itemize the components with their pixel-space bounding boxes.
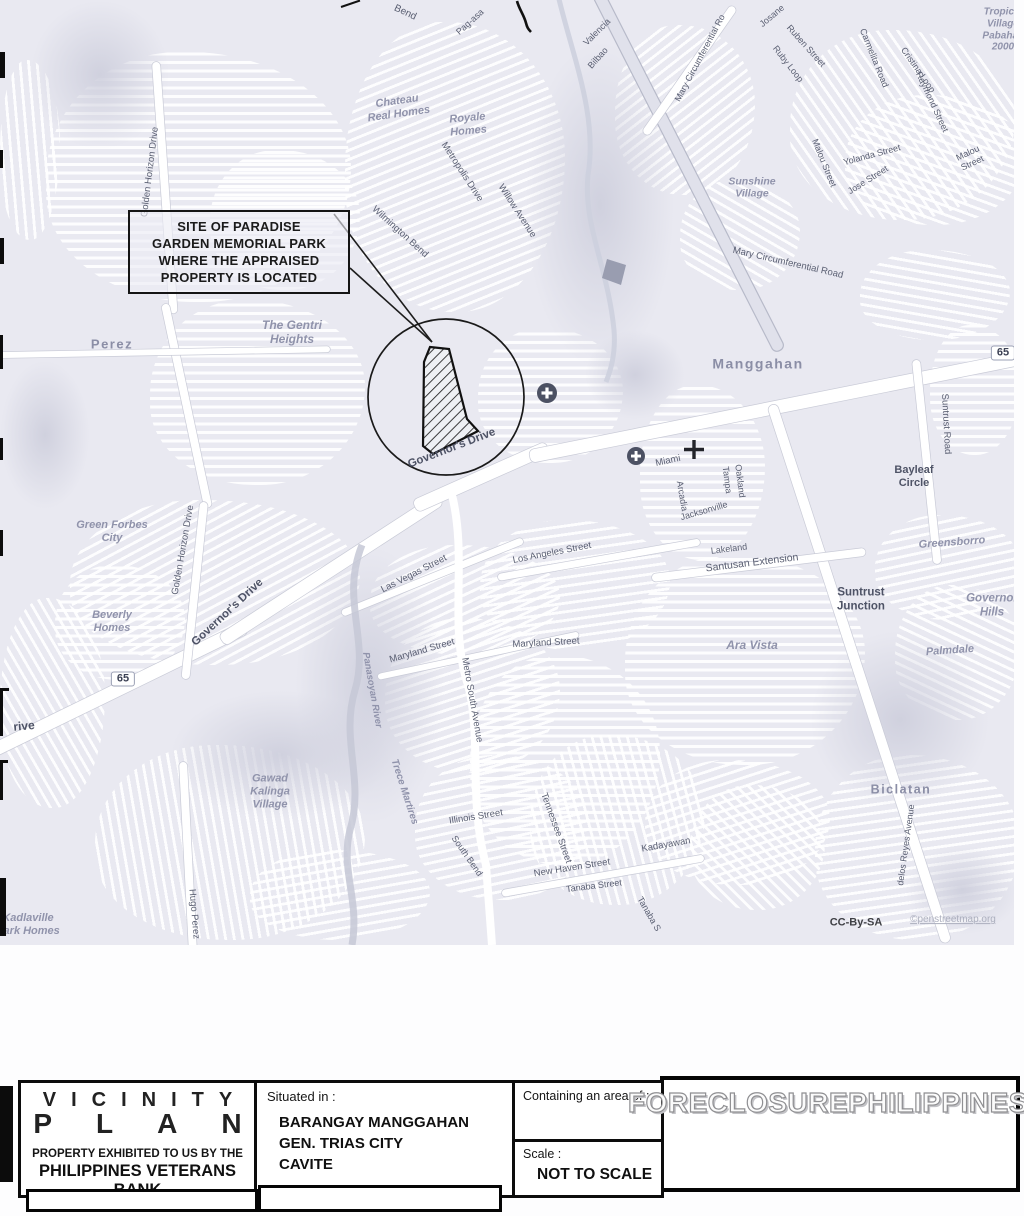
map-label: Gawad Kalinga Village [250,773,290,812]
map-label: Kadlaville Park Homes [0,912,60,938]
situated-in-value: BARANGAY MANGGAHAN GEN. TRIAS CITY CAVIT… [279,1112,512,1175]
scan-artifact [0,335,3,369]
map-label: Sunshine Village [728,176,775,201]
map-label: Tennessee Street [538,791,574,864]
map-label: Beverly Homes [92,609,132,635]
map-label: Ruby Loop [770,44,805,85]
map-label: Tampa [720,466,734,494]
scale-cell: Scale : NOT TO SCALE [515,1142,661,1195]
vicinity-map: BendPag-asaChateau Real HomesWilmington … [0,0,1014,945]
map-label: Bilbao [586,45,611,71]
scan-artifact [0,688,3,736]
scan-artifact [0,438,3,460]
route-shield: 65 [991,346,1014,361]
scan-artifact [0,530,3,556]
situated-in-label: Situated in : [267,1089,512,1104]
map-label: Yolanda Street [842,142,901,167]
scan-artifact [0,150,3,168]
map-label: Miami [654,453,681,469]
map-label: Josane [757,3,786,30]
map-label: Willow Avenue [496,182,539,240]
map-label: Palmdale [925,643,974,659]
map-label: Panasoyan River [360,651,384,728]
map-label: Perez [91,336,133,351]
map-label: Wilmington Bend [370,204,431,260]
map-label: Greensborro [918,534,985,552]
map-label: Cristina Loop [898,45,937,95]
scan-artifact [0,52,5,78]
map-label: Malou Street [946,139,995,177]
titleblock: VICINITY PLAN PROPERTY EXHIBITED TO US B… [18,1080,664,1198]
site-callout-box: SITE OF PARADISE GARDEN MEMORIAL PARK WH… [128,210,350,294]
map-label: Bend [392,3,418,24]
site-callout-text: SITE OF PARADISE GARDEN MEMORIAL PARK WH… [152,218,326,287]
scanned-vicinity-plan-page: BendPag-asaChateau Real HomesWilmington … [0,0,1024,1216]
map-label: Golden Horizon Drive [170,504,197,595]
exhibited-by-text: PROPERTY EXHIBITED TO US BY THE [21,1148,254,1160]
map-label: Suntrust Junction [837,586,885,613]
map-label: Green Forbes City [76,519,148,545]
map-label: Tanaba S [635,895,663,933]
map-label: Illinois Street [448,807,503,827]
map-label: Tropical Village Pabahay 2000 [982,6,1014,53]
scale-value: NOT TO SCALE [537,1166,661,1184]
map-label: Governor Hills [966,592,1014,619]
map-label: Hugo Perez [186,889,202,940]
scan-artifact [0,760,8,763]
map-label: Pag-asa [454,7,486,37]
map-label: Governor's Drive [406,426,498,472]
map-label: Metro South Avenue [459,657,485,744]
map-label: Lakeland [710,542,748,557]
map-label: delos Reyes Avenue [895,804,917,887]
map-label: Manggahan [712,356,803,373]
watermark-text: FORECLOSUREPHILIPPINES.COM [628,1087,1024,1119]
map-label: Ara Vista [726,638,778,652]
map-label: South Bend [449,834,485,879]
scan-artifact [0,238,4,264]
map-label: Las Vegas Street [379,553,449,596]
titleblock-title-cell: VICINITY PLAN PROPERTY EXHIBITED TO US B… [21,1083,257,1195]
scan-artifact [0,1086,13,1182]
map-label: Kadayawan [641,835,692,855]
map-label: Jose Street [846,163,890,196]
map-label: Mary Circumferential Ro [673,13,728,104]
map-label: Valencia [581,16,612,47]
titleblock-situated-cell: Situated in : BARANGAY MANGGAHAN GEN. TR… [257,1083,515,1195]
map-label: Golden Horizon Drive [139,126,161,218]
map-label: ©penstreetmap.org [910,914,996,926]
map-label: Biclatan [871,783,932,798]
titleblock-signature-box [258,1185,502,1212]
map-label: rive [13,718,36,734]
route-shield: 65 [111,672,135,687]
map-label: Tanaba Street [566,877,623,894]
map-label: Governor's Drive [189,576,266,649]
map-label: Maryland Street [512,636,580,651]
scan-artifact [0,878,6,936]
map-label: Los Angeles Street [512,540,592,566]
scan-artifact [0,688,9,691]
map-label: Trece Martires [388,758,420,827]
map-label: Royale Homes [449,110,488,139]
scale-label: Scale : [523,1147,661,1161]
map-label: Suntrust Road [939,393,953,454]
titleblock-signature-box [26,1189,258,1212]
map-label: Chateau Real Homes [365,91,431,125]
scan-artifact [0,760,3,800]
map-label: Oakland [733,464,748,499]
map-label: Carmelita Road [857,27,890,89]
map-label: Bayleaf Circle [894,464,933,490]
map-label: Metropolis Drive [439,140,486,204]
map-label: Mary Circumferential Road [732,245,845,281]
map-label: Malou Street [810,137,839,188]
map-label: Arcadia [674,480,690,512]
map-label: The Gentri Heights [262,318,322,346]
map-labels: BendPag-asaChateau Real HomesWilmington … [0,0,1014,945]
map-label: CC-By-SA [830,917,883,930]
map-label: Maryland Street [388,636,456,665]
